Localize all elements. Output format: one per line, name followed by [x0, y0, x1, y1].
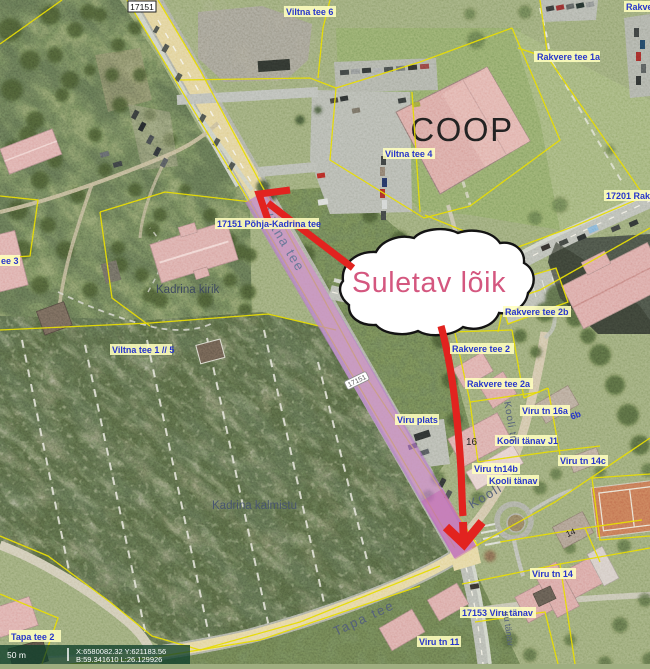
- svg-text:Rakvere tee 1a: Rakvere tee 1a: [537, 52, 601, 62]
- svg-text:50 m: 50 m: [7, 650, 26, 660]
- svg-text:Rakvere tee 2: Rakvere tee 2: [452, 344, 510, 354]
- svg-text:Viltna tee 4: Viltna tee 4: [385, 149, 432, 159]
- svg-text:17201 Rakv: 17201 Rakv: [606, 191, 650, 201]
- svg-text:Rakve: Rakve: [626, 2, 650, 12]
- svg-text:Viru tn 16a: Viru tn 16a: [522, 406, 569, 416]
- svg-text:B:59.341610 L:26.129926: B:59.341610 L:26.129926: [76, 655, 162, 664]
- svg-text:Viltna tee 1 // 5: Viltna tee 1 // 5: [112, 345, 174, 355]
- svg-text:Kooli tänav J1: Kooli tänav J1: [497, 436, 558, 446]
- svg-text:Tapa tee 2: Tapa tee 2: [11, 632, 54, 642]
- svg-text:ee 3: ee 3: [1, 256, 19, 266]
- svg-text:17151 Põhja-Kadrina tee: 17151 Põhja-Kadrina tee: [217, 219, 321, 229]
- svg-text:Viru tn 14c: Viru tn 14c: [560, 456, 606, 466]
- svg-text:Kadrina kirik: Kadrina kirik: [156, 284, 220, 296]
- svg-text:Viru plats: Viru plats: [397, 415, 438, 425]
- svg-text:Viru tn14b: Viru tn14b: [474, 464, 518, 474]
- svg-text:Kadrina kalmistu: Kadrina kalmistu: [212, 500, 297, 512]
- svg-text:16: 16: [466, 437, 478, 448]
- svg-text:Rakvere tee 2b: Rakvere tee 2b: [505, 307, 569, 317]
- svg-text:Suletav lõik: Suletav lõik: [352, 267, 506, 299]
- svg-text:17151: 17151: [130, 2, 154, 12]
- svg-text:Viru tn 14: Viru tn 14: [532, 569, 573, 579]
- svg-text:17153 Viru tänav: 17153 Viru tänav: [462, 608, 533, 618]
- svg-text:Viltna tee 6: Viltna tee 6: [286, 7, 333, 17]
- svg-text:Rakvere tee 2a: Rakvere tee 2a: [467, 379, 531, 389]
- svg-text:Viru tn 11: Viru tn 11: [419, 637, 459, 647]
